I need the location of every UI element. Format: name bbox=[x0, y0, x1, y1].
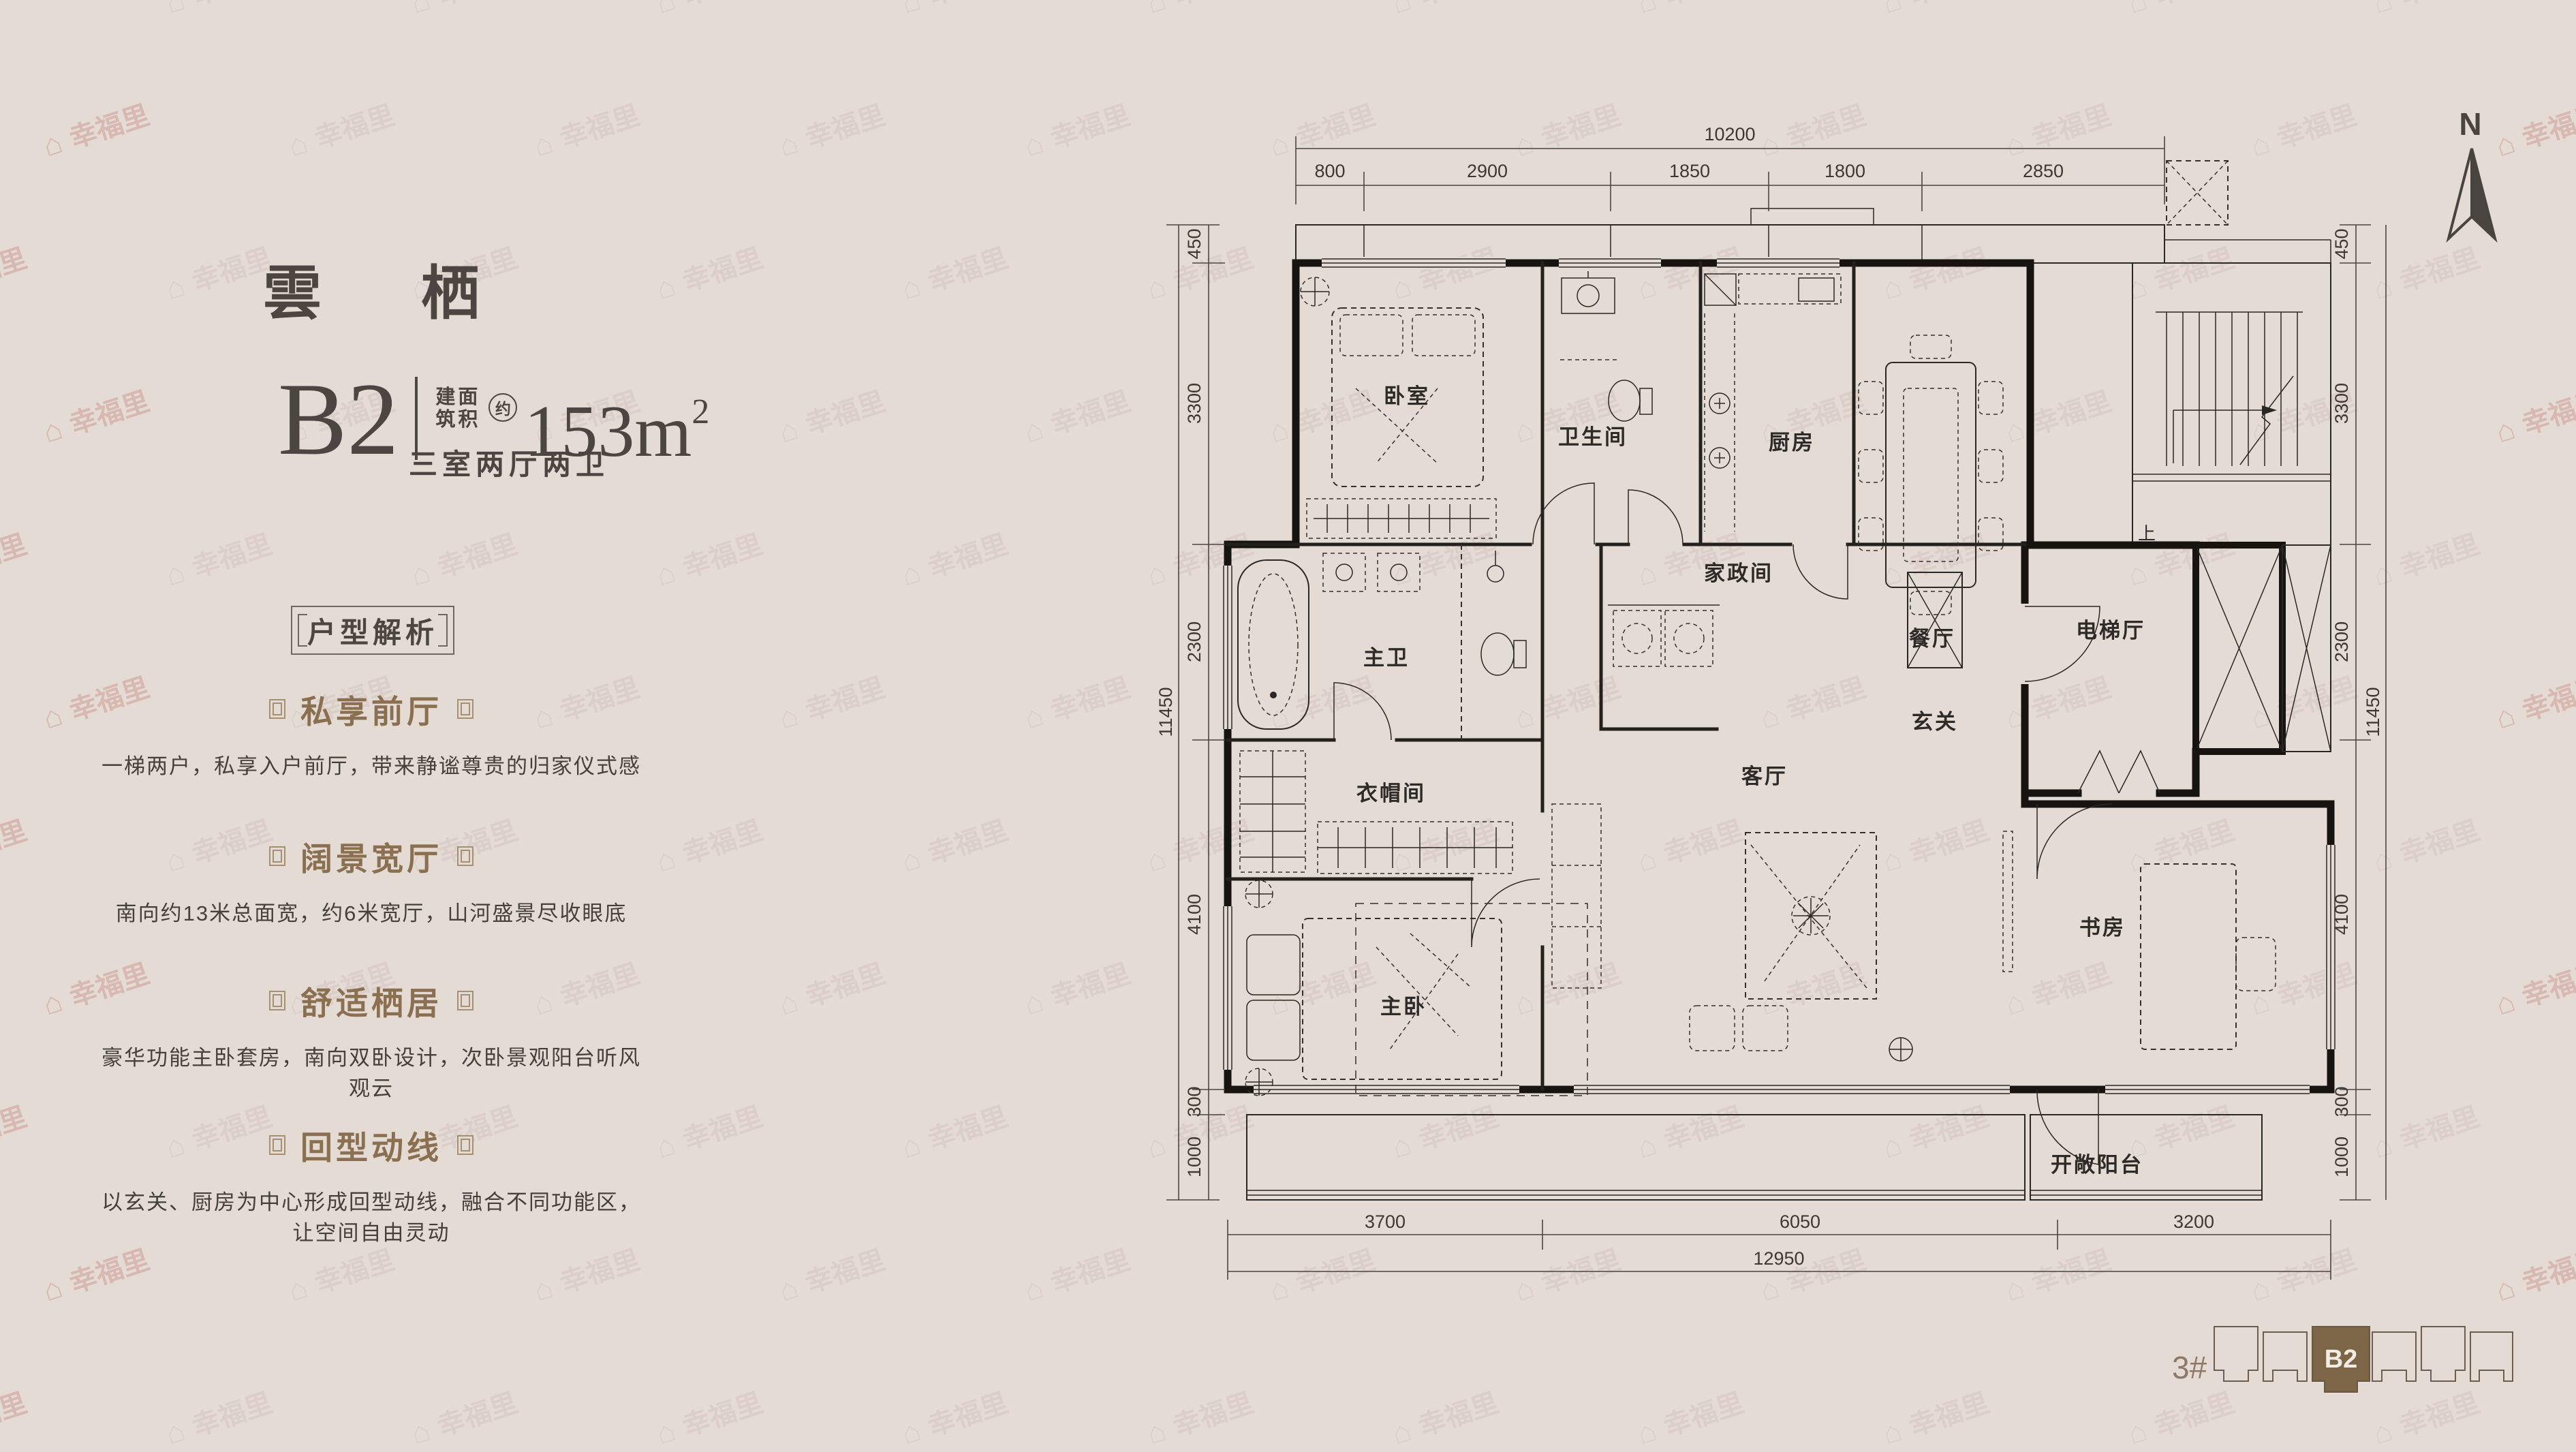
watermark-tile: ⌂幸福里 bbox=[1632, 1381, 1748, 1452]
dim-left-seg: 450 bbox=[1184, 228, 1205, 259]
house-icon: ⌂ bbox=[897, 269, 925, 307]
watermark-tile: ⌂幸福里 bbox=[896, 1095, 1012, 1167]
dim-top-seg: 2900 bbox=[1467, 161, 1508, 181]
corner-ornament-right bbox=[438, 614, 448, 647]
watermark-tile: ⌂幸福里 bbox=[2490, 952, 2576, 1023]
watermark-text: 幸福里 bbox=[925, 243, 1012, 297]
dim-right-seg: 450 bbox=[2331, 228, 2352, 259]
area-prefix: 建面 筑积 bbox=[435, 386, 480, 431]
house-icon: ⌂ bbox=[1633, 0, 1660, 20]
dim-left-seg: 3300 bbox=[1184, 383, 1205, 424]
house-icon: ⌂ bbox=[2492, 1271, 2519, 1308]
room-label-master-bath: 主卫 bbox=[1363, 646, 1410, 670]
dim-right-seg: 3300 bbox=[2331, 383, 2352, 424]
open-balcony: 开敞阳台 bbox=[2030, 1115, 2262, 1200]
watermark-tile: ⌂幸福里 bbox=[2490, 380, 2576, 451]
watermark-tile: ⌂幸福里 bbox=[1019, 380, 1135, 451]
house-icon: ⌂ bbox=[1020, 126, 1047, 164]
house-icon: ⌂ bbox=[1020, 412, 1047, 450]
watermark-tile: ⌂幸福里 bbox=[1632, 0, 1748, 21]
cloakroom-fixtures bbox=[1240, 751, 1512, 874]
area-superscript: 2 bbox=[692, 392, 709, 431]
bathroom-fixtures bbox=[1560, 271, 1652, 421]
room-label-living: 客厅 bbox=[1741, 764, 1788, 788]
living-furniture bbox=[1552, 804, 2013, 1061]
watermark-tile: ⌂幸福里 bbox=[1386, 1381, 1503, 1452]
watermark-text: 幸福里 bbox=[1415, 1388, 1502, 1442]
stairwell: 上 bbox=[2132, 263, 2331, 545]
seal-icon bbox=[457, 991, 474, 1010]
room-label-cloakroom: 衣帽间 bbox=[1356, 782, 1426, 805]
watermark-text: 幸福里 bbox=[802, 386, 889, 440]
dim-right-seg: 4100 bbox=[2331, 894, 2352, 935]
watermark-text: 幸福里 bbox=[802, 1245, 889, 1299]
master-bath-fixtures bbox=[1238, 551, 1526, 729]
section-body: 豪华功能主卧套房，南向双卧设计，次卧景观阳台听风观云 bbox=[95, 1040, 647, 1102]
dim-right-seg: 1000 bbox=[2331, 1137, 2352, 1177]
dim-left: 11450 450 3300 2300 4100 300 1000 bbox=[1155, 225, 1225, 1200]
section-heading-row: 私享前厅 bbox=[95, 685, 647, 732]
house-icon: ⌂ bbox=[1878, 0, 1906, 20]
watermark-text: 幸福里 bbox=[2396, 1102, 2483, 1156]
watermark-tile: ⌂幸福里 bbox=[1019, 952, 1135, 1023]
left-panel: 雲 栖 B2 建面 筑积 约 153m2 三室两厅两卫 户型解析 私享前厅 一梯… bbox=[0, 0, 804, 1449]
dim-right-total: 11450 bbox=[2363, 687, 2383, 737]
seal-icon bbox=[457, 846, 474, 866]
house-icon: ⌂ bbox=[1388, 0, 1415, 20]
dim-right: 450 3300 2300 4100 300 1000 11450 bbox=[2331, 225, 2386, 1200]
watermark-tile: ⌂幸福里 bbox=[896, 1381, 1012, 1452]
watermark-text: 幸福里 bbox=[1047, 1245, 1134, 1299]
section-body: 以玄关、厨房为中心形成回型动线，融合不同功能区，让空间自由灵动 bbox=[95, 1185, 647, 1246]
unit-code: B2 bbox=[278, 371, 399, 467]
house-icon: ⌂ bbox=[2492, 985, 2519, 1022]
key-plan: 3# B2 bbox=[2146, 1305, 2569, 1441]
study-furniture bbox=[2141, 864, 2276, 1049]
watermark-text: 幸福里 bbox=[1047, 100, 1134, 154]
room-label-bathroom: 卫生间 bbox=[1558, 425, 1628, 449]
dim-bottom-seg: 3200 bbox=[2173, 1211, 2214, 1232]
unit-layout-text: 三室两厅两卫 bbox=[409, 442, 609, 483]
watermark-text: 幸福里 bbox=[925, 1388, 1012, 1442]
dim-right-seg: 2300 bbox=[2331, 621, 2352, 662]
seal-icon bbox=[457, 1135, 474, 1155]
dim-top-seg: 800 bbox=[1314, 161, 1345, 181]
house-icon: ⌂ bbox=[1020, 1271, 1047, 1308]
corner-ornament-left bbox=[298, 614, 307, 647]
watermark-tile: ⌂幸福里 bbox=[2368, 0, 2484, 21]
north-label: N bbox=[2459, 106, 2481, 142]
watermark-text: 幸福里 bbox=[2519, 673, 2576, 726]
seal-icon bbox=[269, 1135, 285, 1155]
section-wide-hall: 阔景宽厅 南向约13米总面宽，约6米宽厅，山河盛景尽收眼底 bbox=[95, 833, 647, 927]
seal-icon bbox=[269, 846, 285, 866]
watermark-tile: ⌂幸福里 bbox=[1386, 0, 1503, 21]
watermark-text: 幸福里 bbox=[2396, 816, 2483, 869]
dim-left-seg: 2300 bbox=[1184, 621, 1205, 662]
dim-bottom-seg: 6050 bbox=[1780, 1211, 1820, 1232]
room-label-foyer: 玄关 bbox=[1912, 710, 1958, 734]
room-label-elevator-hall: 电梯厅 bbox=[2076, 619, 2145, 643]
section-heading-row: 回型动线 bbox=[95, 1122, 647, 1169]
room-label-kitchen: 厨房 bbox=[1769, 431, 1815, 454]
watermark-tile: ⌂幸福里 bbox=[1877, 1381, 1993, 1452]
watermark-tile: ⌂幸福里 bbox=[1019, 93, 1135, 165]
dim-bottom-seg: 3700 bbox=[1365, 1211, 1406, 1232]
dim-top-seg: 2850 bbox=[2023, 161, 2064, 181]
watermark-text: 幸福里 bbox=[1170, 1388, 1257, 1442]
approx-badge: 约 bbox=[488, 393, 517, 422]
room-label-open-balcony: 开敞阳台 bbox=[2051, 1153, 2143, 1177]
house-icon: ⌂ bbox=[897, 0, 925, 20]
section-heading-row: 舒适栖居 bbox=[95, 977, 647, 1024]
house-icon: ⌂ bbox=[2369, 0, 2396, 20]
watermark-text: 幸福里 bbox=[1660, 0, 1748, 11]
watermark-text: 幸福里 bbox=[802, 673, 889, 726]
utility-fixtures bbox=[1608, 605, 1720, 666]
room-label-study: 书房 bbox=[2079, 916, 2126, 940]
section-heading-row: 阔景宽厅 bbox=[95, 833, 647, 880]
watermark-text: 幸福里 bbox=[925, 816, 1012, 869]
house-icon: ⌂ bbox=[1020, 698, 1047, 736]
section-comfort-living: 舒适栖居 豪华功能主卧套房，南向双卧设计，次卧景观阳台听风观云 bbox=[95, 977, 647, 1102]
watermark-tile: ⌂幸福里 bbox=[2490, 666, 2576, 737]
dim-top-total: 10200 bbox=[1704, 124, 1755, 144]
watermark-text: 幸福里 bbox=[2396, 243, 2483, 297]
dim-left-seg: 300 bbox=[1184, 1086, 1205, 1117]
doors bbox=[1334, 483, 2112, 1164]
dim-right-seg: 300 bbox=[2331, 1086, 2352, 1117]
dim-left-total: 11450 bbox=[1155, 687, 1176, 737]
house-icon: ⌂ bbox=[1143, 1414, 1170, 1451]
dim-bottom: 3700 6050 3200 12950 bbox=[1228, 1211, 2331, 1280]
house-icon: ⌂ bbox=[1878, 1414, 1906, 1451]
north-indicator: N bbox=[2417, 99, 2526, 249]
watermark-tile: ⌂幸福里 bbox=[1141, 0, 1258, 21]
house-icon: ⌂ bbox=[2124, 0, 2151, 20]
windows bbox=[1222, 257, 2337, 1096]
analysis-title: 户型解析 bbox=[307, 610, 438, 651]
skylight-shaft bbox=[2167, 161, 2228, 225]
dim-left-seg: 4100 bbox=[1184, 894, 1205, 935]
watermark-text: 幸福里 bbox=[1906, 0, 1993, 11]
watermark-text: 幸福里 bbox=[1170, 0, 1257, 11]
house-icon: ⌂ bbox=[897, 1128, 925, 1165]
watermark-text: 幸福里 bbox=[1047, 386, 1134, 440]
watermark-tile: ⌂幸福里 bbox=[2122, 0, 2239, 21]
watermark-text: 幸福里 bbox=[1906, 1388, 1993, 1442]
floor-plan: 上 bbox=[1151, 95, 2405, 1315]
house-icon: ⌂ bbox=[897, 1414, 925, 1451]
watermark-text: 幸福里 bbox=[2519, 100, 2576, 154]
master-bedroom-furniture bbox=[1245, 880, 1587, 1096]
watermark-tile: ⌂幸福里 bbox=[1877, 0, 1993, 21]
watermark-tile: ⌂幸福里 bbox=[896, 809, 1012, 880]
watermark-tile: ⌂幸福里 bbox=[896, 0, 1012, 21]
watermark-tile: ⌂幸福里 bbox=[2490, 1238, 2576, 1310]
section-loop-circulation: 回型动线 以玄关、厨房为中心形成回型动线，融合不同功能区，让空间自由灵动 bbox=[95, 1122, 647, 1246]
watermark-tile: ⌂幸福里 bbox=[1019, 1238, 1135, 1310]
house-icon: ⌂ bbox=[2492, 698, 2519, 736]
analysis-title-box: 户型解析 bbox=[291, 606, 454, 655]
project-title: 雲 栖 bbox=[123, 245, 620, 330]
section-private-foyer: 私享前厅 一梯两户，私享入户前厅，带来静谧尊贵的归家仪式感 bbox=[95, 685, 647, 779]
watermark-tile: ⌂幸福里 bbox=[896, 523, 1012, 594]
watermark-text: 幸福里 bbox=[2396, 529, 2483, 583]
watermark-text: 幸福里 bbox=[802, 959, 889, 1013]
dim-top: 10200 800 2900 1850 1800 2850 bbox=[1296, 124, 2164, 211]
watermark-text: 幸福里 bbox=[2519, 959, 2576, 1013]
elevator-shaft bbox=[2196, 545, 2331, 752]
house-icon: ⌂ bbox=[1143, 0, 1170, 20]
watermark-text: 幸福里 bbox=[2519, 1245, 2576, 1299]
building-number-label: 3# bbox=[2172, 1350, 2207, 1385]
room-label-utility: 家政间 bbox=[1704, 561, 1773, 585]
south-balcony bbox=[1247, 1115, 2025, 1200]
watermark-tile: ⌂幸福里 bbox=[896, 236, 1012, 308]
area-prefix-line1: 建面 bbox=[435, 386, 480, 409]
house-icon: ⌂ bbox=[2492, 412, 2519, 450]
house-icon: ⌂ bbox=[1633, 1414, 1660, 1451]
house-icon: ⌂ bbox=[1388, 1414, 1415, 1451]
dim-bottom-total: 12950 bbox=[1753, 1248, 1804, 1269]
watermark-text: 幸福里 bbox=[802, 100, 889, 154]
dim-left-seg: 1000 bbox=[1184, 1137, 1205, 1177]
house-icon: ⌂ bbox=[897, 841, 925, 879]
watermark-tile: ⌂幸福里 bbox=[1019, 666, 1135, 737]
section-heading: 舒适栖居 bbox=[300, 977, 442, 1024]
room-label-master-bedroom: 主卧 bbox=[1380, 995, 1427, 1019]
stairs-up-label: 上 bbox=[2138, 523, 2156, 544]
watermark-text: 幸福里 bbox=[925, 529, 1012, 583]
section-heading: 私享前厅 bbox=[300, 685, 442, 732]
watermark-text: 幸福里 bbox=[2396, 0, 2483, 11]
key-plan-unit-label: B2 bbox=[2325, 1345, 2358, 1374]
watermark-text: 幸福里 bbox=[2519, 386, 2576, 440]
area-prefix-line2: 筑积 bbox=[435, 409, 480, 431]
watermark-text: 幸福里 bbox=[1047, 959, 1134, 1013]
interior-walls bbox=[1228, 263, 2025, 1090]
house-icon: ⌂ bbox=[897, 555, 925, 593]
watermark-text: 幸福里 bbox=[1047, 673, 1134, 726]
floor-plan-svg: 上 bbox=[1151, 95, 2405, 1315]
seal-icon bbox=[269, 991, 285, 1010]
north-arrow-icon: N bbox=[2417, 99, 2526, 249]
seal-icon bbox=[269, 699, 285, 719]
section-body: 南向约13米总面宽，约6米宽厅，山河盛景尽收眼底 bbox=[95, 896, 647, 927]
room-label-dining: 餐厅 bbox=[1909, 627, 1955, 651]
kitchen-fixtures bbox=[1705, 274, 1841, 531]
watermark-tile: ⌂幸福里 bbox=[1141, 1381, 1258, 1452]
watermark-text: 幸福里 bbox=[1415, 0, 1502, 11]
watermark-text: 幸福里 bbox=[1660, 1388, 1748, 1442]
watermark-text: 幸福里 bbox=[2151, 0, 2238, 11]
key-plan-svg: 3# B2 bbox=[2146, 1305, 2569, 1441]
dim-top-seg: 1800 bbox=[1825, 161, 1865, 181]
section-heading: 回型动线 bbox=[300, 1122, 442, 1169]
section-body: 一梯两户，私享入户前厅，带来静谧尊贵的归家仪式感 bbox=[95, 749, 647, 779]
house-icon: ⌂ bbox=[1020, 985, 1047, 1022]
seal-icon bbox=[457, 699, 474, 719]
room-label-bedroom: 卧室 bbox=[1384, 384, 1430, 408]
elevator-hall-walls bbox=[2025, 545, 2196, 793]
top-parapet-strip bbox=[1296, 208, 2331, 263]
watermark-text: 幸福里 bbox=[925, 1102, 1012, 1156]
watermark-text: 幸福里 bbox=[925, 0, 1012, 11]
dim-top-seg: 1850 bbox=[1669, 161, 1710, 181]
section-heading: 阔景宽厅 bbox=[300, 833, 442, 880]
